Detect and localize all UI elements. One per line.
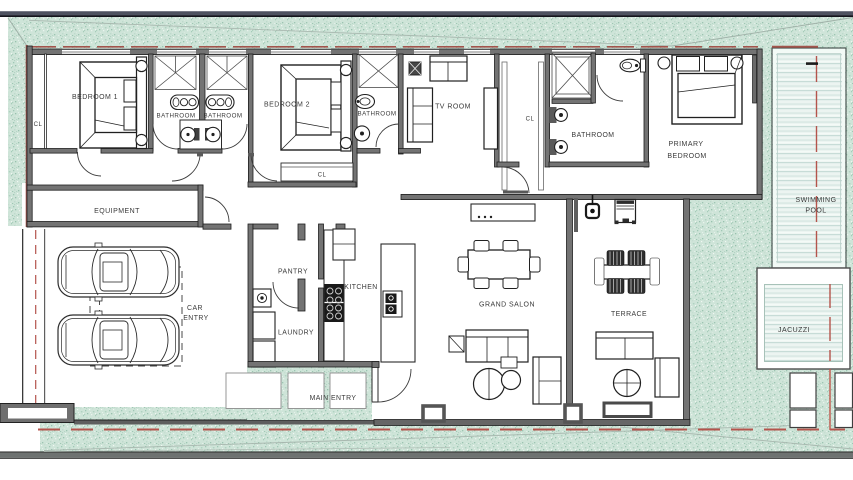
svg-text:ENTRY: ENTRY	[183, 315, 208, 322]
svg-text:LAUNDRY: LAUNDRY	[278, 330, 314, 337]
svg-text:KITCHEN: KITCHEN	[344, 284, 377, 291]
svg-text:EQUIPMENT: EQUIPMENT	[94, 208, 140, 215]
svg-text:JACUZZI: JACUZZI	[778, 327, 810, 334]
svg-text:SWIMMING: SWIMMING	[796, 197, 837, 204]
svg-text:BATHROOM: BATHROOM	[358, 111, 397, 118]
svg-text:MAIN ENTRY: MAIN ENTRY	[310, 395, 357, 402]
svg-text:TV ROOM: TV ROOM	[435, 104, 471, 111]
svg-text:BATHROOM: BATHROOM	[204, 113, 243, 120]
svg-text:BATHROOM: BATHROOM	[572, 132, 615, 139]
svg-text:GRAND SALON: GRAND SALON	[479, 302, 535, 309]
svg-text:CL: CL	[318, 172, 327, 179]
svg-text:CL: CL	[526, 116, 535, 123]
svg-text:PANTRY: PANTRY	[278, 269, 308, 276]
svg-text:BATHROOM: BATHROOM	[157, 113, 196, 120]
svg-text:BEDROOM 1: BEDROOM 1	[72, 94, 118, 101]
svg-text:TERRACE: TERRACE	[611, 311, 647, 318]
svg-text:CL: CL	[34, 121, 43, 128]
svg-text:POOL: POOL	[805, 208, 826, 215]
svg-text:BEDROOM 2: BEDROOM 2	[264, 102, 310, 109]
svg-text:BEDROOM: BEDROOM	[667, 153, 706, 160]
svg-text:CAR: CAR	[187, 305, 203, 312]
svg-text:PRIMARY: PRIMARY	[669, 141, 704, 148]
